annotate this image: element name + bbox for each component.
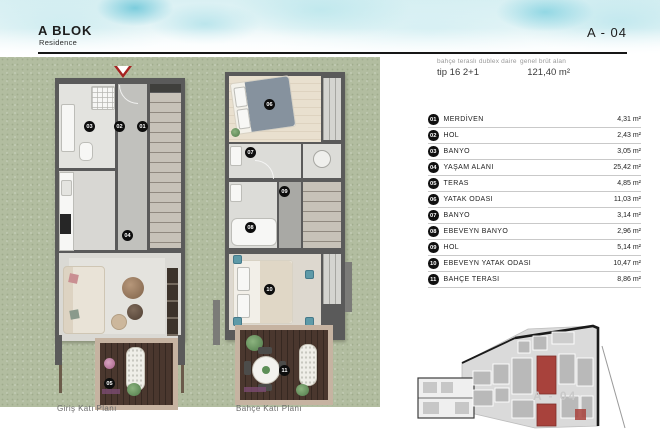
sofa-pillow (69, 309, 79, 319)
room-row: 02HOL2,43 m² (428, 128, 641, 144)
room-number-badge: 03 (428, 146, 439, 157)
room-number-badge: 08 (428, 226, 439, 237)
flower-pot (104, 358, 115, 369)
entrance-arrow-icon (114, 66, 132, 78)
room-name: MERDİVEN (444, 116, 613, 123)
room-number-badge: 01 (428, 114, 439, 125)
site-key-plan: A - 04 (415, 316, 655, 440)
shower-circle (313, 150, 331, 168)
gross-area-info: genel brüt alan 121,40 m² (520, 58, 570, 78)
bedroom-10-wardrobe (323, 254, 341, 304)
plan-marker-05: 05 (104, 378, 115, 389)
side-table (127, 304, 143, 320)
room-number-badge: 09 (428, 242, 439, 253)
room-area: 8,86 m² (617, 276, 641, 283)
plan-marker-11: 11 (279, 365, 290, 376)
terrace-table (252, 356, 280, 384)
room-area: 4,31 m² (617, 116, 641, 123)
room-name: HOL (444, 132, 613, 139)
coffee-table (122, 277, 144, 299)
plan-marker-02: 02 (114, 121, 125, 132)
keyplan-boundary-line (602, 346, 625, 428)
bed-06-pillow (236, 108, 251, 129)
garden-wall-stub (178, 335, 185, 365)
room-name: BANYO (444, 148, 613, 155)
room-row: 10EBEVEYN YATAK ODASI10,47 m² (428, 256, 641, 272)
keyplan-unit-label: A - 04 (533, 389, 577, 403)
room-area-list: 01MERDİVEN4,31 m² 02HOL2,43 m² 03BANYO3,… (428, 112, 641, 288)
room-row: 08EBEVEYN BANYO2,96 m² (428, 224, 641, 240)
terrace-05-deck (95, 338, 178, 410)
room-row: 03BANYO3,05 m² (428, 144, 641, 160)
bathroom-08-sink (230, 184, 242, 202)
room-name: BAHÇE TERASI (444, 276, 613, 283)
unit-type-info: bahçe teraslı dublex daire tip 16 2+1 (437, 58, 517, 78)
room-area: 2,96 m² (617, 228, 641, 235)
keyplan-left-wing (418, 378, 474, 418)
room-number-badge: 04 (428, 162, 439, 173)
room-row: 05TERAS4,85 m² (428, 176, 641, 192)
room-row: 06YATAK ODASI11,03 m² (428, 192, 641, 208)
ground-floor-plan (55, 78, 185, 341)
plan-marker-10: 10 (264, 284, 275, 295)
toilet (79, 142, 93, 161)
room-row: 07BANYO3,14 m² (428, 208, 641, 224)
stairs-09 (303, 182, 341, 248)
terrace-chair (258, 347, 272, 354)
room-area: 25,42 m² (613, 164, 641, 171)
bedroom-06-wardrobe (323, 78, 341, 140)
room-number-badge: 06 (428, 194, 439, 205)
bathroom-counter (61, 104, 75, 152)
header-divider (38, 52, 627, 54)
fence-post (59, 365, 62, 393)
plan-marker-04: 04 (122, 230, 133, 241)
bed-06-pillow (233, 86, 248, 107)
room-row: 04YAŞAM ALANI25,42 m² (428, 160, 641, 176)
gross-area-value: 121,40 m² (520, 67, 570, 78)
watercolor-banner (0, 0, 660, 56)
gross-area-label: genel brüt alan (520, 58, 570, 65)
unit-type-label: bahçe teraslı dublex daire (437, 58, 517, 65)
unit-type-value: tip 16 2+1 (437, 67, 517, 78)
room-name: EBEVEYN BANYO (444, 228, 613, 235)
flower-bed (244, 387, 266, 392)
garden-wall-stub (55, 335, 62, 365)
room-area: 3,05 m² (617, 148, 641, 155)
room-number-badge: 07 (428, 210, 439, 221)
plan-marker-08: 08 (245, 222, 256, 233)
plan-marker-07: 07 (245, 147, 256, 158)
unit-code: A - 04 (587, 25, 627, 40)
room-row: 09HOL5,14 m² (428, 240, 641, 256)
room-name: HOL (444, 244, 613, 251)
block-subtitle: Residence (39, 38, 77, 47)
room-area: 3,14 m² (617, 212, 641, 219)
room-name: EBEVEYN YATAK ODASI (444, 260, 609, 267)
kitchen-oven (60, 214, 71, 234)
bed-06 (230, 75, 297, 135)
room-area: 4,85 m² (617, 180, 641, 187)
bed-10-pillow (237, 294, 250, 318)
room-name: TERAS (444, 180, 613, 187)
plan-marker-06: 06 (264, 99, 275, 110)
kitchen-sink (61, 180, 72, 196)
room-name: YATAK ODASI (444, 196, 609, 203)
room-area: 2,43 m² (617, 132, 641, 139)
fence-post (181, 365, 184, 393)
terrace-chair (244, 361, 251, 375)
ground-floor-caption: Giriş Katı Planı (57, 404, 117, 413)
room-row: 11BAHÇE TERASI8,86 m² (428, 272, 641, 288)
stairs-01 (150, 93, 181, 248)
room-area: 5,14 m² (617, 244, 641, 251)
room-row: 01MERDİVEN4,31 m² (428, 112, 641, 128)
nightstand (233, 255, 242, 264)
tv-unit (167, 268, 178, 336)
plan-marker-03: 03 (84, 121, 95, 132)
pouf (111, 314, 127, 330)
terrace-bush (296, 384, 309, 396)
room-number-badge: 11 (428, 274, 439, 285)
room-name: YAŞAM ALANI (444, 164, 609, 171)
sofa-pillow (68, 273, 79, 284)
bathtub (231, 218, 277, 246)
room-number-badge: 10 (428, 258, 439, 269)
floorplan-sheet: A BLOK Residence A - 04 bahçe teraslı du… (0, 0, 660, 447)
nightstand-plant (231, 128, 240, 137)
plan-marker-09: 09 (279, 186, 290, 197)
room-number-badge: 05 (428, 178, 439, 189)
closet-strip (150, 84, 181, 92)
shower-unit (91, 86, 115, 110)
nightstand (305, 270, 314, 279)
room-area: 11,03 m² (614, 196, 641, 203)
garden-floor-plan (225, 72, 345, 340)
garden-wall-stub (213, 300, 220, 345)
plan-marker-01: 01 (137, 121, 148, 132)
hall-02-floor (118, 84, 147, 250)
flower-bed (102, 389, 120, 394)
bathroom-07-sink (230, 146, 242, 166)
garden-sculpture (299, 344, 317, 386)
garden-wall-stub (345, 262, 352, 312)
terrace-plant (127, 383, 141, 396)
table-centerpiece (262, 366, 270, 374)
block-title: A BLOK (38, 23, 92, 38)
garden-floor-caption: Bahçe Katı Planı (236, 404, 302, 413)
bed-10 (233, 260, 293, 324)
room-area: 10,47 m² (613, 260, 641, 267)
room-name: BANYO (444, 212, 613, 219)
bed-10-pillow (237, 267, 250, 291)
room-number-badge: 02 (428, 130, 439, 141)
